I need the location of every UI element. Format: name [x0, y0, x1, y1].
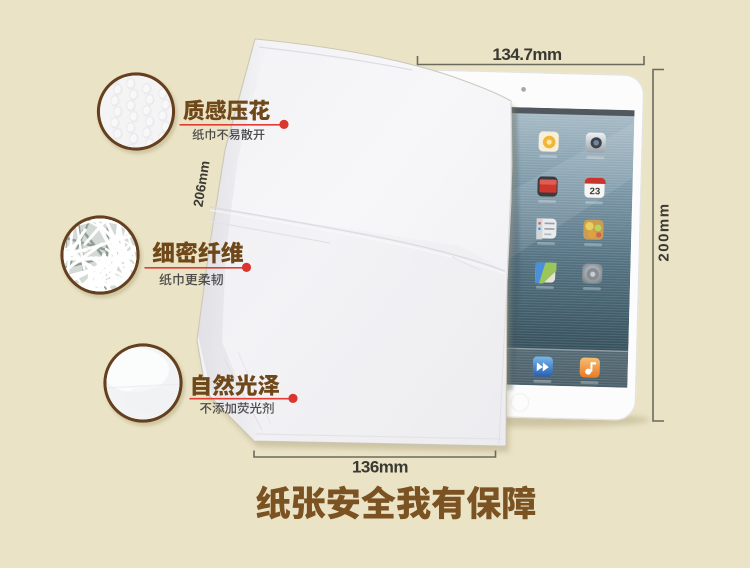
svg-text:136mm: 136mm — [352, 458, 408, 477]
svg-text:200mm: 200mm — [656, 202, 673, 261]
svg-text:134.7mm: 134.7mm — [492, 45, 562, 64]
svg-text:23: 23 — [589, 186, 600, 197]
